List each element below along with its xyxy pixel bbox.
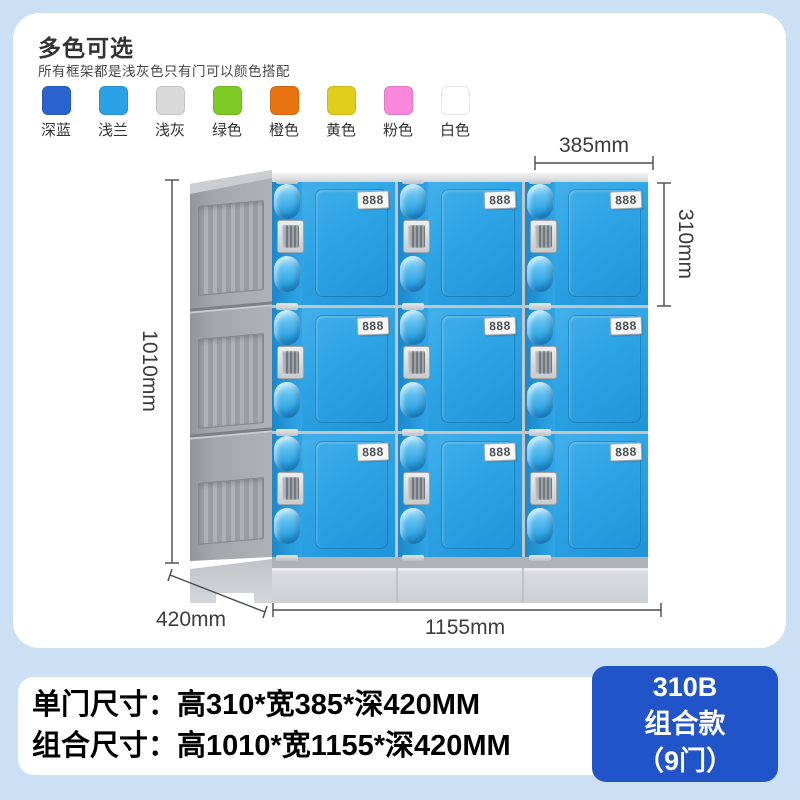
dim-label-depth: 420mm (156, 608, 226, 632)
locker-base-side (190, 557, 272, 603)
hinge-bump-top (527, 436, 553, 471)
door-handle (530, 220, 557, 253)
door-handle-slot (535, 477, 552, 500)
hinge-bump-bottom (400, 508, 426, 544)
dim-label-total-height: 1010mm (137, 330, 161, 412)
hinge-bracket (529, 430, 551, 436)
locker-door: 888 (525, 308, 648, 431)
door-number-plate: 888 (483, 190, 516, 209)
spec-lines: 单门尺寸：高310*宽385*深420MM 组合尺寸：高1010*宽1155*深… (32, 685, 511, 767)
locker-door: 888 (398, 182, 521, 305)
locker-door-grid: 888 888 (272, 182, 648, 557)
door-handle-slot (282, 477, 299, 500)
main-card: 多色可选 所有框架都是浅灰色只有门可以颜色搭配 深蓝 浅兰 浅灰 绿色 橙色 黄… (13, 13, 786, 648)
hinge-bracket (276, 430, 298, 436)
model-badge: 310B 组合款 （9门） (592, 666, 778, 782)
side-rib-panel (198, 200, 264, 296)
hinge-bump-bottom (274, 256, 300, 292)
door-handle-slot (282, 351, 299, 374)
hinge-bump-top (274, 310, 300, 345)
door-handle (277, 220, 304, 253)
dim-line-door-height (657, 183, 671, 306)
dim-line-total-width (273, 603, 661, 617)
hinge-bump-bottom (527, 256, 553, 292)
hinge-bump-top (274, 184, 300, 219)
hinge-bump-bottom (527, 508, 553, 544)
door-number-plate: 888 (357, 316, 390, 335)
badge-doors: （9门） (637, 743, 733, 780)
door-number-plate: 888 (357, 442, 390, 461)
hinge-bump-top (400, 310, 426, 345)
product-image-page: { "colors": { "page_bg": "#CBDFF5", "car… (0, 0, 800, 800)
door-handle (403, 220, 430, 253)
door-handle (530, 472, 557, 505)
locker-door: 888 (272, 308, 395, 431)
hinge-bracket (276, 178, 298, 184)
locker-base-front (272, 557, 648, 603)
locker-door: 888 (525, 182, 648, 305)
hinge-bump-top (400, 184, 426, 219)
hinge-bump-top (527, 184, 553, 219)
door-handle (403, 346, 430, 379)
dim-label-door-width: 385mm (559, 134, 629, 158)
dim-line-door-width (535, 156, 653, 170)
badge-model: 310B (653, 669, 718, 706)
locker-door: 888 (398, 308, 521, 431)
door-handle-slot (282, 225, 299, 248)
hinge-bracket (529, 178, 551, 184)
door-handle (277, 346, 304, 379)
hinge-bracket (276, 304, 298, 310)
hinge-bump-bottom (527, 382, 553, 418)
locker-door: 888 (272, 182, 395, 305)
locker-door: 888 (525, 434, 648, 557)
hinge-bracket (402, 430, 424, 436)
door-number-plate: 888 (483, 316, 516, 335)
hinge-bump-bottom (274, 508, 300, 544)
door-number-plate: 888 (483, 442, 516, 461)
locker-side-panel (190, 170, 272, 561)
door-handle-slot (408, 225, 425, 248)
spec-line-single-door: 单门尺寸：高310*宽385*深420MM (32, 685, 511, 726)
hinge-bump-bottom (274, 382, 300, 418)
hinge-bump-top (274, 436, 300, 471)
hinge-bracket (529, 304, 551, 310)
door-number-plate: 888 (357, 190, 390, 209)
door-handle-slot (408, 477, 425, 500)
hinge-bracket (402, 178, 424, 184)
locker-door: 888 (272, 434, 395, 557)
door-handle (403, 472, 430, 505)
side-rib-panel (198, 333, 264, 429)
door-handle-slot (408, 351, 425, 374)
side-rib-panel (198, 477, 264, 545)
badge-series: 组合款 (645, 706, 726, 743)
base-seam (522, 568, 524, 603)
dim-label-total-width: 1155mm (425, 616, 505, 640)
locker-door: 888 (398, 434, 521, 557)
base-seam (396, 568, 398, 603)
hinge-bump-top (400, 436, 426, 471)
door-handle (277, 472, 304, 505)
hinge-bracket (529, 555, 551, 561)
hinge-bump-bottom (400, 382, 426, 418)
door-number-plate: 888 (610, 190, 643, 209)
side-seam (190, 301, 272, 313)
hinge-bump-bottom (400, 256, 426, 292)
hinge-bracket (402, 555, 424, 561)
locker-top-strip (272, 173, 648, 182)
door-handle-slot (535, 351, 552, 374)
dim-label-door-height: 310mm (673, 209, 697, 279)
door-handle-slot (535, 225, 552, 248)
hinge-bracket (276, 555, 298, 561)
door-number-plate: 888 (610, 442, 643, 461)
hinge-bump-top (527, 310, 553, 345)
side-seam (190, 427, 272, 439)
hinge-bracket (402, 304, 424, 310)
door-handle (530, 346, 557, 379)
spec-line-combined: 组合尺寸：高1010*宽1155*深420MM (32, 726, 511, 767)
dim-line-total-height (165, 180, 179, 563)
locker-illustration: 888 888 (13, 13, 786, 648)
door-number-plate: 888 (610, 316, 643, 335)
